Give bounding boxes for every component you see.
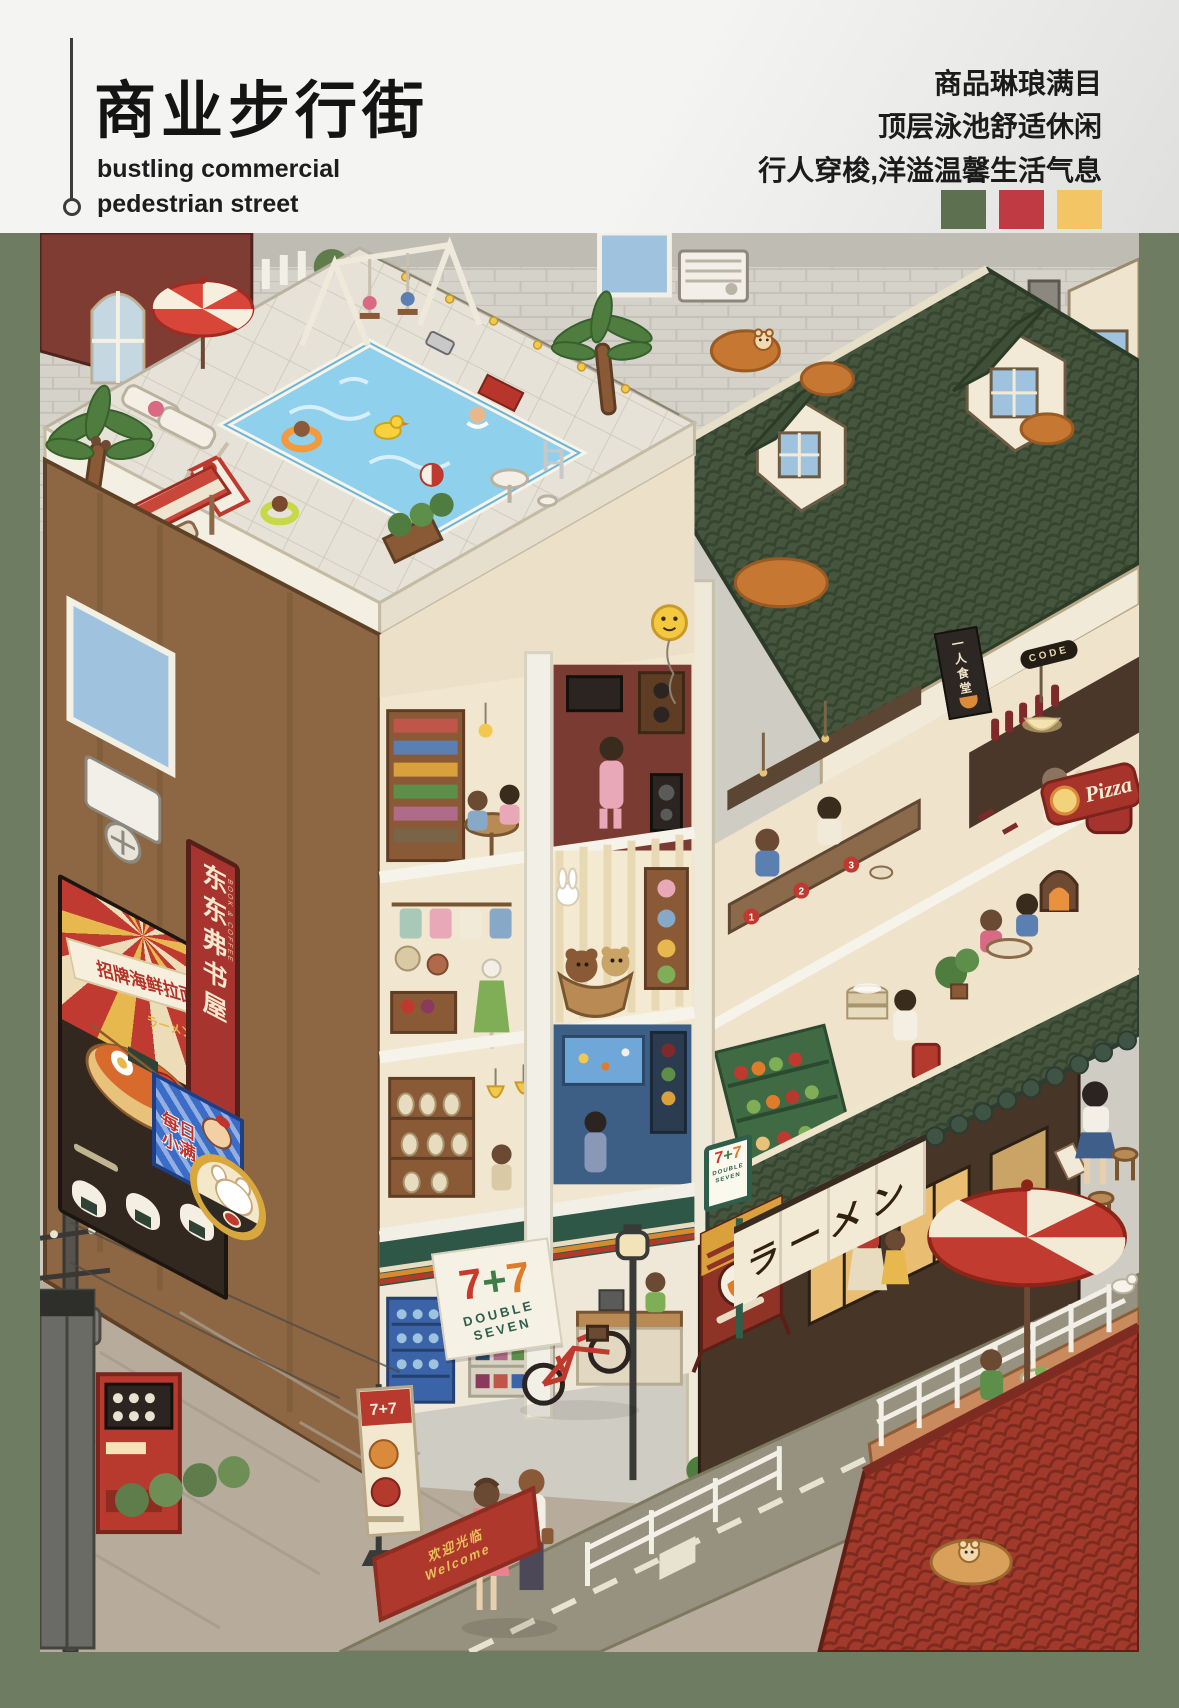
steamer-stack (847, 983, 887, 1018)
seat-number-2: 2 (799, 887, 805, 898)
tv-screen (568, 677, 622, 711)
page-title: 商业步行街 (94, 60, 429, 150)
upper-window (599, 233, 669, 295)
palette-green-swatch (941, 190, 986, 229)
left-building (45, 245, 695, 1484)
bookstore-sign-tagline: BOOK & COFFEE (226, 877, 233, 964)
clerk (645, 1272, 665, 1292)
banner-logo: 7+7 (369, 1400, 397, 1419)
tagline-line-1: 商品琳琅满目 (758, 62, 1102, 105)
poster-caption-bar (74, 1143, 118, 1173)
bike-basket (588, 1326, 608, 1340)
ac-unit-top (679, 251, 747, 301)
hamster-in-leaves (754, 329, 772, 349)
leaf-pile-hamster (931, 1540, 1011, 1584)
balcony-guest (980, 1349, 1003, 1400)
subtitle-line-1: bustling commercial (97, 152, 340, 187)
diner-1 (755, 829, 779, 877)
poster-onigiri-1 (72, 1174, 106, 1222)
tagline-line-2: 顶层泳池舒适休闲 (758, 105, 1102, 148)
page-subtitle: bustling commercial pedestrian street (97, 152, 340, 222)
hat (396, 946, 420, 970)
palette-red-swatch (999, 190, 1044, 229)
aquarium-girl (585, 1111, 607, 1172)
chef (893, 989, 917, 1040)
fish-tank (564, 1036, 644, 1084)
plush-shop (554, 835, 692, 1023)
pizza-icon (1047, 782, 1083, 818)
speaker (651, 775, 681, 831)
seven-pole-sign: 7+7 DOUBLE SEVEN (704, 1133, 752, 1213)
satchel (542, 1528, 554, 1544)
street-cabinet (40, 1290, 94, 1648)
subtitle-line-2: pedestrian street (97, 187, 340, 222)
header-rule-dot (63, 198, 81, 216)
register (599, 1290, 623, 1310)
tagline-line-3: 行人穿梭,洋溢温馨生活气息 (758, 149, 1102, 192)
seat-number-1: 1 (749, 913, 755, 924)
header: 商业步行街 bustling commercial pedestrian str… (0, 0, 1179, 233)
poster-onigiri-2 (126, 1187, 160, 1235)
beach-ball (421, 464, 443, 486)
pizza-sign-text: Pizza (1082, 771, 1135, 808)
palette-yellow-swatch (1057, 190, 1102, 229)
tagline: 商品琳琅满目 顶层泳池舒适休闲 行人穿梭,洋溢温馨生活气息 (758, 62, 1102, 192)
header-rule (70, 38, 73, 200)
street-illustration: 1 2 3 (40, 233, 1139, 1652)
poster-page: 商业步行街 bustling commercial pedestrian str… (0, 0, 1179, 1708)
aquarium-room (554, 1024, 692, 1184)
logo-seven-right: 7 (503, 1253, 533, 1303)
diner-2 (817, 797, 841, 845)
seven-store-sign: 7+7 DOUBLE SEVEN (431, 1237, 563, 1360)
white-cat (1112, 1274, 1137, 1293)
seat-number-3: 3 (848, 861, 854, 872)
color-palette (941, 190, 1102, 229)
